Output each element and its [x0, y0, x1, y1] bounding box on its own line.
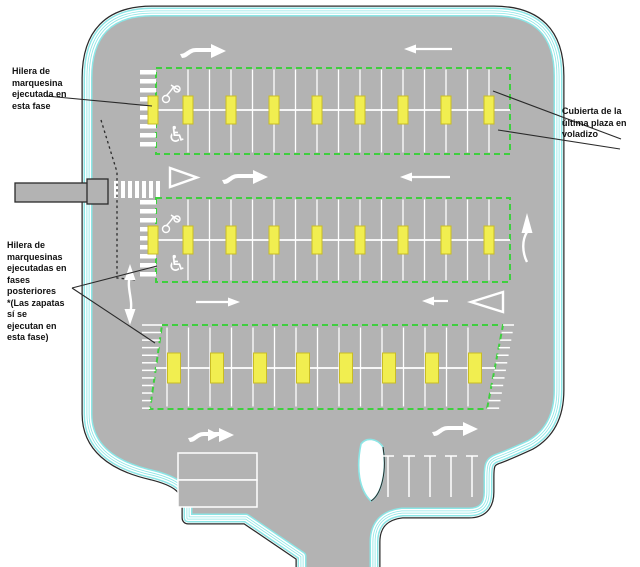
canopy-post — [441, 226, 451, 254]
canopy-post — [340, 353, 353, 383]
label-line: ejecutada en — [12, 89, 67, 101]
building-block — [178, 453, 257, 480]
canopy-post — [226, 226, 236, 254]
canopy-post — [168, 353, 181, 383]
canopy-post — [441, 96, 451, 124]
canopy-post — [148, 96, 158, 124]
canopy-post — [312, 226, 322, 254]
hatch-bar — [140, 142, 156, 147]
canopy-post — [426, 353, 439, 383]
canopy-post — [226, 96, 236, 124]
hatch-bar — [140, 209, 156, 214]
canopy-post — [398, 226, 408, 254]
label-canopy-this-phase: Hilera de marquesina ejecutada en esta f… — [12, 66, 67, 112]
building-block — [178, 480, 257, 507]
label-line: marquesina — [12, 78, 67, 90]
label-line: posteriores — [7, 286, 67, 298]
label-line: esta fase) — [7, 332, 67, 344]
canopy-post — [269, 96, 279, 124]
canopy-post — [254, 353, 267, 383]
canopy-post — [183, 96, 193, 124]
parking-plan-svg: ♿♿ — [0, 0, 640, 567]
hatch-bar — [140, 133, 156, 138]
label-line: sí se — [7, 309, 67, 321]
label-line: Hilera de — [12, 66, 67, 78]
crosswalk-bar — [135, 181, 139, 198]
crosswalk-bar — [156, 181, 160, 198]
label-line: Cubierta de la — [562, 106, 627, 118]
crosswalk-bar — [142, 181, 146, 198]
hatch-bar — [140, 79, 156, 84]
entrance-gate — [87, 179, 108, 204]
canopy-post — [398, 96, 408, 124]
label-line: marquesinas — [7, 252, 67, 264]
hatch-bar — [140, 272, 156, 277]
label-line: última plaza en — [562, 118, 627, 130]
hatch-bar — [140, 200, 156, 205]
canopy-post — [297, 353, 310, 383]
label-line: fases — [7, 275, 67, 287]
label-line: *(Las zapatas — [7, 298, 67, 310]
hatch-bar — [140, 124, 156, 129]
hatch-bar — [140, 70, 156, 75]
label-line: ejecutadas en — [7, 263, 67, 275]
wheelchair-icon: ♿ — [167, 123, 187, 148]
canopy-post — [383, 353, 396, 383]
hatch-bar — [140, 254, 156, 259]
canopy-post — [269, 226, 279, 254]
canopy-post — [148, 226, 158, 254]
wheelchair-icon: ♿ — [167, 252, 187, 277]
crosswalk-bar — [121, 181, 125, 198]
canopy-post — [355, 96, 365, 124]
label-line: ejecutan en — [7, 321, 67, 333]
hatch-bar — [140, 88, 156, 93]
label-line: esta fase — [12, 101, 67, 113]
canopy-post — [312, 96, 322, 124]
canopy-post — [484, 226, 494, 254]
label-line: Hilera de — [7, 240, 67, 252]
hatch-bar — [140, 218, 156, 223]
label-cantilever-cover: Cubierta de la última plaza en voladizo — [562, 106, 627, 141]
canopy-post — [469, 353, 482, 383]
canopy-post — [484, 96, 494, 124]
crosswalk-bar — [149, 181, 153, 198]
canopy-post — [355, 226, 365, 254]
label-canopy-later-phases: Hilera de marquesinas ejecutadas en fase… — [7, 240, 67, 344]
label-line: voladizo — [562, 129, 627, 141]
canopy-post — [183, 226, 193, 254]
crosswalk-bar — [128, 181, 132, 198]
canopy-post — [211, 353, 224, 383]
site-plan: ♿♿ Hilera de marquesina ejecutada en est… — [0, 0, 640, 567]
